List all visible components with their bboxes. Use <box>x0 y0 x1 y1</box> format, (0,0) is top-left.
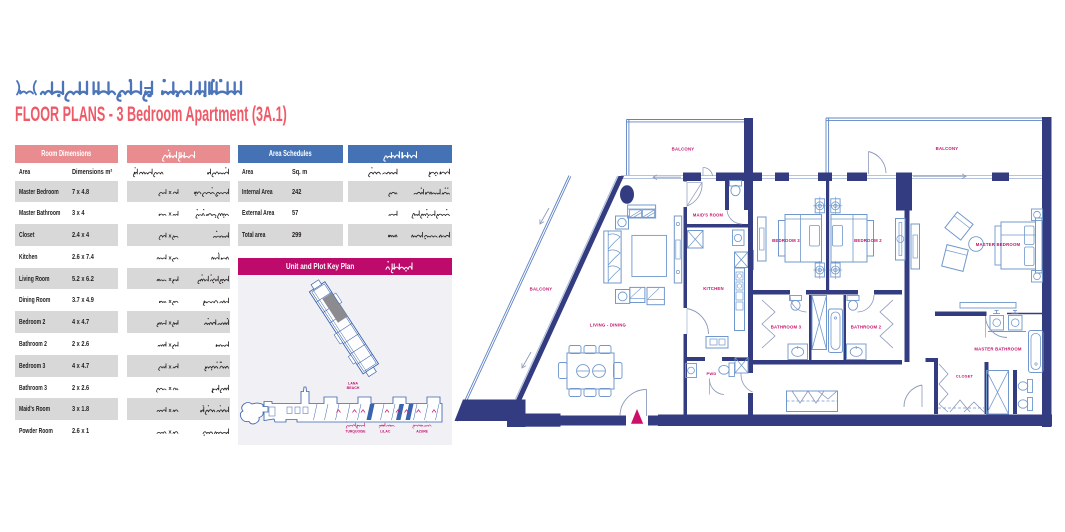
svg-text:KITCHEN: KITCHEN <box>703 286 724 291</box>
svg-text:x: x <box>169 234 173 240</box>
svg-text:x: x <box>169 321 173 327</box>
svg-text:x: x <box>169 343 173 349</box>
svg-text:x: x <box>169 277 173 283</box>
svg-text:x: x <box>169 212 173 218</box>
svg-text:TURQUOISE: TURQUOISE <box>345 430 366 434</box>
svg-text:PWD: PWD <box>707 371 717 376</box>
svg-text:MAID'S ROOM: MAID'S ROOM <box>693 213 724 218</box>
svg-text:x: x <box>169 190 173 196</box>
svg-text:BEACH: BEACH <box>347 386 360 390</box>
svg-text:x: x <box>169 386 173 392</box>
svg-text:BALCONY: BALCONY <box>936 146 959 151</box>
svg-text:AZURE: AZURE <box>416 430 428 434</box>
svg-text:x: x <box>169 430 173 436</box>
svg-text:MASTER BATHROOM: MASTER BATHROOM <box>974 347 1022 352</box>
svg-text:x: x <box>169 255 173 261</box>
svg-text:BATHROOM 3: BATHROOM 3 <box>771 324 802 329</box>
svg-text:LILAC: LILAC <box>380 430 391 434</box>
svg-text:x: x <box>169 364 173 370</box>
svg-text:BEDROOM 3: BEDROOM 3 <box>772 238 800 243</box>
svg-text:MASTER BEDROOM: MASTER BEDROOM <box>976 242 1021 247</box>
svg-text:BATHROOM 2: BATHROOM 2 <box>851 324 882 329</box>
svg-text:CLOSET: CLOSET <box>956 374 974 379</box>
svg-text:x: x <box>169 299 173 305</box>
svg-text:BALCONY: BALCONY <box>530 287 553 292</box>
svg-text:BEDROOM 2: BEDROOM 2 <box>854 238 882 243</box>
svg-text:BALCONY: BALCONY <box>672 147 695 152</box>
svg-text:x: x <box>169 408 173 414</box>
svg-text:LANA: LANA <box>348 382 358 386</box>
svg-text:LIVING - DINING: LIVING - DINING <box>590 323 627 328</box>
